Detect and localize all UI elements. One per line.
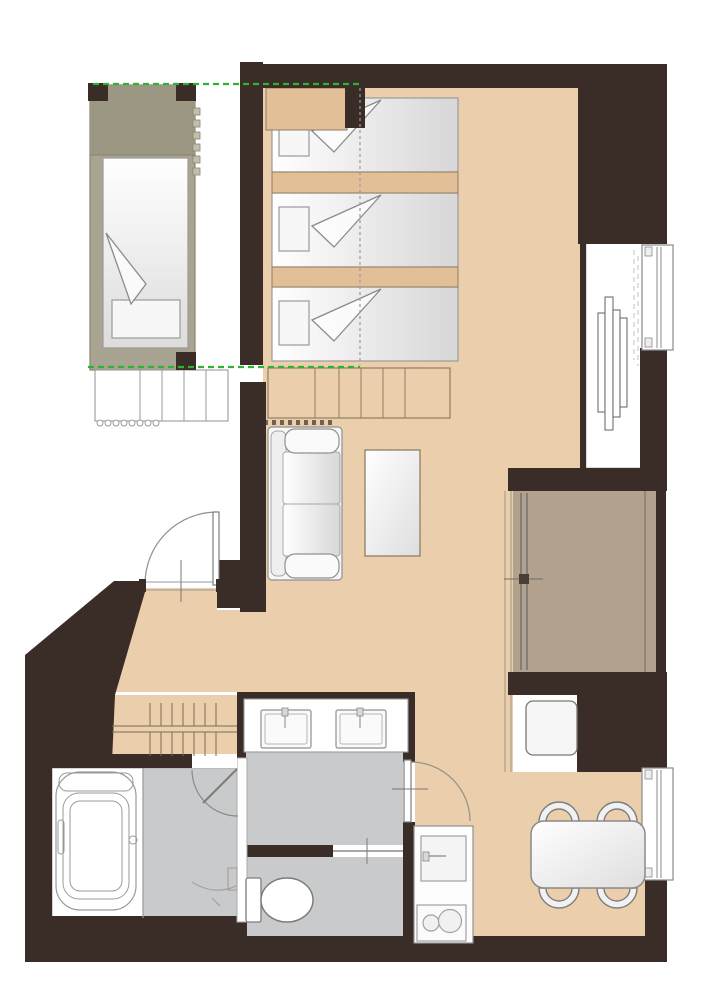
vanity-unit [244, 699, 408, 752]
wall-loft-edge-stub [345, 88, 365, 128]
bed-3 [272, 287, 458, 361]
sofa [268, 427, 342, 580]
kitchen-stove [417, 905, 466, 941]
headboard-shelf [266, 88, 347, 130]
window-closet [642, 245, 673, 350]
bed-2 [272, 193, 458, 267]
window-dining [642, 768, 673, 880]
kitchen-sink [421, 836, 466, 881]
wall-right-upper-block [578, 88, 667, 244]
wall-closet-edge [580, 185, 586, 470]
refrigerator [526, 701, 577, 755]
wall-balcony-top [508, 468, 667, 491]
wall-dining-right [645, 876, 667, 942]
toilet [246, 878, 313, 922]
kitchen-unit [414, 826, 473, 943]
wall-bath-top [52, 754, 192, 768]
burner-icon [423, 915, 439, 931]
faucet-icon [357, 708, 363, 716]
bathtub [56, 772, 137, 910]
wall-balcony-outer [656, 468, 666, 695]
faucet-icon [282, 708, 288, 716]
wall-pipe-space [577, 693, 667, 772]
wall-kitchen-lower [403, 822, 415, 940]
living-stairs [264, 368, 450, 425]
stair-balusters [264, 420, 332, 425]
faucet-icon [423, 852, 429, 861]
loft-bed [103, 158, 188, 348]
wall-toilet-top [243, 845, 333, 857]
vanity-sink-1 [261, 708, 311, 748]
wall-balcony-bottom [508, 672, 667, 695]
loft-post-1 [88, 83, 108, 101]
shower-room-floor [143, 768, 237, 918]
floor-plan [0, 0, 708, 1000]
wall-living-left [240, 382, 266, 612]
floor-plan-page [0, 0, 708, 1000]
dining-table [531, 821, 645, 888]
wall-bedroom-left [240, 62, 263, 365]
burner-icon [439, 910, 462, 933]
entrance-step-floor [112, 695, 237, 760]
wall-bottom-left [25, 916, 247, 962]
bed-gap-shelf-2 [272, 267, 458, 287]
loft-stairs [95, 370, 228, 426]
balcony-floor [513, 491, 660, 672]
bed-gap-shelf-1 [272, 172, 458, 193]
coffee-table [365, 450, 420, 556]
beds [266, 88, 458, 361]
loft-post-2 [176, 83, 196, 101]
vanity-sink-2 [336, 708, 386, 748]
wall-below-top-window [640, 348, 667, 470]
